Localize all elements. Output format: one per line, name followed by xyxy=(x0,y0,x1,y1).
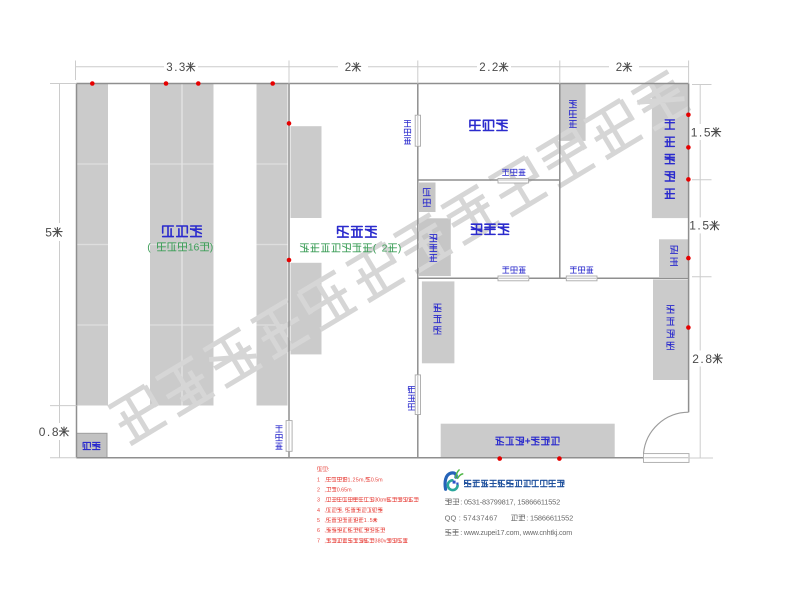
svg-text:(: ( xyxy=(373,243,377,255)
svg-text:2.8: 2.8 xyxy=(692,352,712,366)
svg-text:5: 5 xyxy=(45,225,52,239)
svg-text:3.3: 3.3 xyxy=(166,62,185,74)
svg-text:0.5m: 0.5m xyxy=(371,477,383,483)
svg-text:: 0531-83799817, 15866611552: : 0531-83799817, 15866611552 xyxy=(460,497,560,506)
svg-text:16: 16 xyxy=(188,242,200,254)
svg-text::: : xyxy=(328,467,330,473)
svg-text:2: 2 xyxy=(616,62,622,74)
svg-text:): ) xyxy=(210,242,214,254)
svg-text:30cm: 30cm xyxy=(375,498,387,504)
svg-text:0.8: 0.8 xyxy=(39,425,59,439)
svg-text:QQ : 57437467: QQ : 57437467 xyxy=(445,513,498,522)
svg-text:380v: 380v xyxy=(375,539,387,545)
svg-text:1.25m,: 1.25m, xyxy=(348,477,366,483)
svg-text:1.5: 1.5 xyxy=(689,219,709,233)
svg-text:1.5: 1.5 xyxy=(364,518,373,524)
svg-text:: 15866611552: : 15866611552 xyxy=(526,513,573,522)
svg-text:0.65m: 0.65m xyxy=(337,487,352,493)
svg-text:+: + xyxy=(525,437,531,448)
svg-text:1.5: 1.5 xyxy=(691,125,711,139)
svg-text:2: 2 xyxy=(345,62,351,74)
svg-text:(: ( xyxy=(147,242,151,254)
svg-text:: www.zupei17.com, www.cnhtkj: : www.zupei17.com, www.cnhtkj.com xyxy=(460,528,572,537)
svg-text:2: 2 xyxy=(382,243,388,255)
svg-text:): ) xyxy=(398,243,402,255)
svg-text:2.2: 2.2 xyxy=(479,62,498,74)
